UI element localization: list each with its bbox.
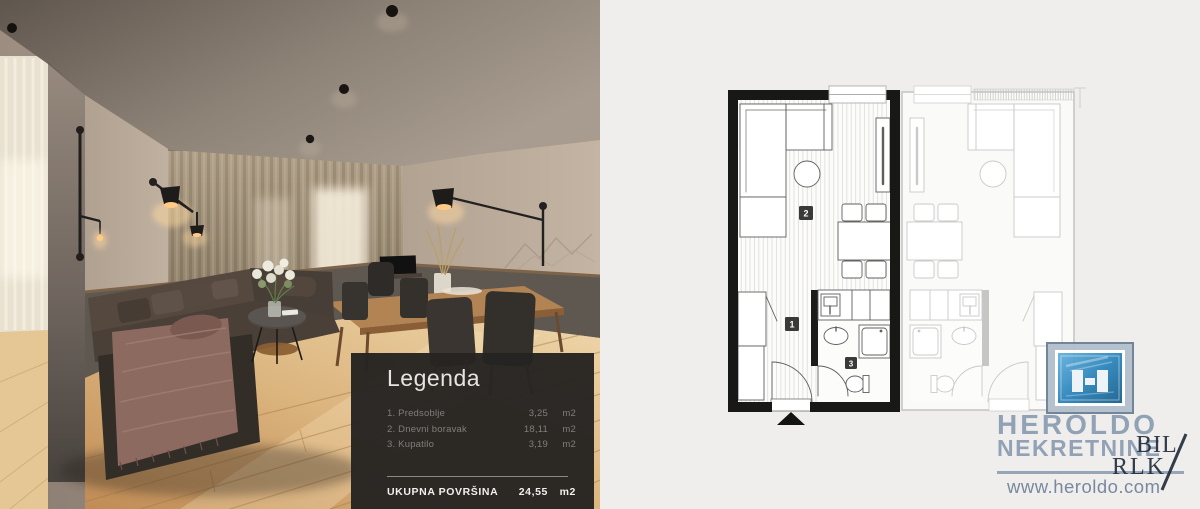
dining-chair: [342, 282, 368, 320]
main-unit: 2 1 3: [728, 86, 900, 425]
legend-total-row: UKUPNA POVRŠINA 24,55 m2: [387, 486, 576, 498]
legend-row: 1. Predsoblje 3,25 m2: [387, 406, 576, 422]
label-bathroom: 3: [849, 360, 854, 369]
dining-chair: [400, 278, 428, 318]
legend-item-value: 18,11: [502, 422, 548, 438]
legend-item-label: 1. Predsoblje: [387, 406, 502, 422]
legend-total-label: UKUPNA POVRŠINA: [387, 486, 502, 498]
legend-total-unit: m2: [548, 486, 576, 498]
legend-row: 2. Dnevni boravak 18,11 m2: [387, 422, 576, 438]
plan-window: [829, 86, 886, 103]
watermark-diagonal: [1094, 432, 1198, 492]
legend-row: 3. Kupatilo 3,19 m2: [387, 437, 576, 453]
legend-item-unit: m2: [548, 406, 576, 422]
legend-divider: [387, 476, 568, 477]
label-hallway: 1: [789, 320, 794, 330]
heroldo-logo-icon: [1046, 342, 1134, 414]
legend-item-label: 2. Dnevni boravak: [387, 422, 502, 438]
balcony-hatch: [974, 89, 1074, 100]
side-window: [0, 56, 48, 332]
legend-panel: Legenda 1. Predsoblje 3,25 m2 2. Dnevni …: [351, 353, 594, 509]
legend-title: Legenda: [387, 365, 576, 392]
legend-item-unit: m2: [548, 422, 576, 438]
legend-item-label: 3. Kupatilo: [387, 437, 502, 453]
serif-watermark: BIL RLK: [1094, 432, 1198, 492]
label-living-room: 2: [803, 209, 808, 219]
side-floor: [0, 330, 48, 509]
legend-item-unit: m2: [548, 437, 576, 453]
legend-item-value: 3,25: [502, 406, 548, 422]
real-estate-flyer: 2 1 3: [0, 0, 1200, 509]
legend-total-value: 24,55: [502, 486, 548, 498]
desk-chair: [368, 262, 394, 296]
legend-item-value: 3,19: [502, 437, 548, 453]
floorplan-panel: 2 1 3: [600, 0, 1200, 509]
